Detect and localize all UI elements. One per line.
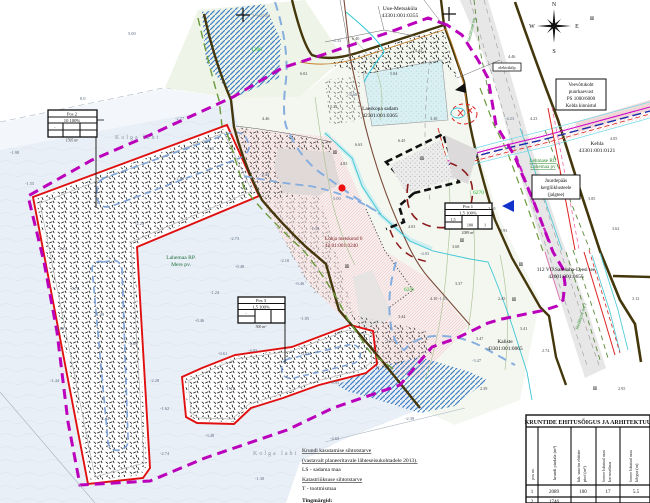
svg-text:II: II [460, 239, 464, 244]
svg-text:-2.44: -2.44 [260, 172, 270, 177]
svg-text:T - tootmismaa: T - tootmismaa [302, 486, 337, 492]
svg-text:W: W [529, 24, 535, 30]
svg-text:II: II [519, 263, 523, 268]
svg-text:-0.70: -0.70 [70, 286, 80, 291]
svg-text:2.10: 2.10 [488, 206, 495, 211]
svg-text:-2.39: -2.39 [405, 416, 415, 421]
svg-text:PS 1000/6000: PS 1000/6000 [567, 97, 596, 102]
svg-text:2.45: 2.45 [498, 296, 505, 301]
svg-text:-4.33: -4.33 [332, 38, 342, 43]
svg-text:-2.25: -2.25 [135, 221, 145, 226]
svg-text:1.93: 1.93 [500, 228, 507, 233]
svg-text:-4.68: -4.68 [348, 92, 358, 97]
svg-text:-2.10: -2.10 [280, 258, 290, 263]
svg-text:-2.60: -2.60 [205, 146, 215, 151]
svg-text:1595 m²: 1595 m² [66, 139, 79, 143]
svg-text:3.44: 3.44 [398, 314, 406, 319]
svg-text:-0.46: -0.46 [295, 281, 305, 286]
svg-text:4.03: 4.03 [408, 224, 415, 229]
svg-text:-1.44: -1.44 [50, 378, 60, 383]
svg-text:5.00: 5.00 [128, 31, 136, 36]
svg-text:4.10: 4.10 [430, 296, 437, 301]
svg-text:42301:001:0365: 42301:001:0365 [362, 113, 398, 119]
svg-text:elektrikilp: elektrikilp [498, 65, 515, 70]
svg-text:5.00: 5.00 [333, 196, 341, 201]
svg-text:2.39: 2.39 [480, 386, 487, 391]
svg-text:4.23: 4.23 [530, 116, 537, 121]
svg-text:-0.61: -0.61 [218, 351, 227, 356]
svg-text:100: 100 [579, 490, 587, 495]
svg-text:17: 17 [606, 490, 612, 495]
svg-text:S: S [552, 49, 555, 55]
svg-text:4.42: 4.42 [415, 48, 422, 53]
svg-text:43301:001:0065: 43301:001:0065 [487, 346, 523, 352]
svg-text:-1.30: -1.30 [255, 476, 265, 481]
svg-text:42601:001:0655: 42601:001:0655 [548, 274, 584, 280]
svg-text:-4.03: -4.03 [248, 348, 258, 353]
svg-text:-3.48: -3.48 [205, 433, 215, 438]
svg-text:-2.74: -2.74 [160, 451, 170, 456]
svg-text:-4.23: -4.23 [505, 116, 515, 121]
svg-text:Mere pv.: Mere pv. [171, 262, 191, 268]
svg-text:Kaliste: Kaliste [497, 339, 513, 345]
svg-text:puurkaevust: puurkaevust [569, 90, 594, 95]
svg-text:6.45: 6.45 [398, 138, 405, 143]
svg-text:-1.98: -1.98 [10, 150, 20, 155]
svg-text:-2.62: -2.62 [175, 176, 184, 181]
svg-text:62/0: 62/0 [404, 287, 414, 293]
svg-text:(vastavalt planeeritavale läht: (vastavalt planeeritavale lähteseisukoht… [302, 457, 418, 464]
svg-text:500 m²: 500 m² [256, 325, 268, 329]
svg-text:6.02: 6.02 [300, 71, 307, 76]
svg-text:Kehla: Kehla [590, 141, 604, 147]
svg-text:-1.05: -1.05 [300, 316, 310, 321]
svg-text:43301:001:0121: 43301:001:0121 [579, 148, 616, 154]
svg-text:-2.73: -2.73 [230, 236, 240, 241]
svg-text:-0.95: -0.95 [330, 380, 340, 385]
svg-text:4.46: 4.46 [262, 116, 269, 121]
svg-text:-0.03: -0.03 [300, 351, 310, 356]
svg-text:krundi pindala (m²): krundi pindala (m²) [552, 445, 557, 480]
svg-text:N: N [552, 2, 557, 8]
svg-text:6270: 6270 [473, 190, 484, 196]
svg-text:Lahemaa pv: Lahemaa pv [530, 164, 556, 170]
svg-text:Katastriüksuse sihtotstarve: Katastriüksuse sihtotstarve [302, 477, 363, 483]
svg-text:Kelda kinnistul: Kelda kinnistul [566, 104, 597, 109]
svg-text:Pos 2: Pos 2 [67, 112, 78, 117]
svg-text:-4.65: -4.65 [330, 436, 340, 441]
svg-text:3.85: 3.85 [588, 196, 595, 201]
svg-text:-0.46: -0.46 [195, 318, 205, 323]
svg-text:Kolga laht: Kolga laht [253, 451, 298, 457]
svg-text:3.10: 3.10 [430, 116, 437, 121]
svg-text:-2.77: -2.77 [175, 116, 185, 121]
svg-text:-3.47: -3.47 [472, 358, 482, 363]
svg-text:Kolga laht: Kolga laht [115, 135, 160, 141]
svg-text:-1.55: -1.55 [25, 181, 35, 186]
svg-text:2089: 2089 [549, 490, 560, 495]
svg-text:hoone lubatud max: hoone lubatud max [601, 449, 606, 482]
svg-text:II: II [590, 17, 594, 22]
svg-text:2.95: 2.95 [618, 386, 625, 391]
svg-text:10 100%: 10 100% [64, 118, 81, 123]
svg-text:II: II [593, 387, 597, 392]
svg-text:1200: 1200 [251, 47, 262, 53]
svg-text:Pos 1: Pos 1 [463, 204, 474, 209]
svg-text:-2.14: -2.14 [58, 246, 68, 251]
svg-text:8.0: 8.0 [80, 96, 86, 101]
svg-text:3.12: 3.12 [632, 296, 639, 301]
svg-text:II: II [345, 265, 349, 270]
svg-text:4.05: 4.05 [610, 136, 617, 141]
svg-text:6.40: 6.40 [352, 36, 359, 41]
svg-text:II: II [333, 151, 337, 156]
svg-text:-0.48: -0.48 [235, 264, 245, 269]
svg-text:Lohja metskond 6: Lohja metskond 6 [325, 236, 363, 242]
svg-text:4.46: 4.46 [508, 54, 515, 59]
svg-text:-1.22: -1.22 [385, 338, 394, 343]
svg-text:-4.03: -4.03 [420, 251, 430, 256]
svg-text:korruselisus: korruselisus [607, 461, 612, 482]
svg-text:Juurdepääs: Juurdepääs [545, 179, 567, 184]
svg-text:-1.41: -1.41 [225, 386, 234, 391]
svg-text:Tingmärgid:: Tingmärgid: [302, 498, 332, 503]
svg-text:Veevõtukoht: Veevõtukoht [568, 83, 594, 88]
svg-text:-2.89: -2.89 [55, 326, 65, 331]
svg-text:43:01:001:0240: 43:01:001:0240 [325, 243, 358, 249]
svg-text:pos nr.: pos nr. [530, 468, 535, 480]
svg-text:Lehmase RÜ: Lehmase RÜ [529, 157, 556, 164]
svg-text:lub. suurim ehitiste: lub. suurim ehitiste [576, 450, 581, 482]
svg-text:3.68: 3.68 [452, 244, 459, 249]
svg-text:Laeskopa sadam: Laeskopa sadam [362, 106, 399, 112]
svg-text:-1.62: -1.62 [160, 406, 169, 411]
svg-text:Uue-Metsaküla: Uue-Metsaküla [383, 6, 418, 12]
svg-text:-2.44: -2.44 [100, 416, 110, 421]
svg-text:Lahemaa RP.: Lahemaa RP. [166, 255, 196, 261]
svg-text:-1.39: -1.39 [95, 312, 105, 317]
svg-text:2089 m²: 2089 m² [462, 231, 475, 235]
svg-text:-1.39: -1.39 [310, 226, 320, 231]
svg-text:II: II [420, 157, 424, 162]
svg-text:3.41: 3.41 [520, 326, 527, 331]
svg-text:Pos 3: Pos 3 [256, 298, 267, 303]
svg-text:-2.28: -2.28 [150, 378, 160, 383]
svg-text:2.74: 2.74 [542, 348, 550, 353]
svg-text:KRUNTIDE EHITUSÕIGUS JA ARHITE: KRUNTIDE EHITUSÕIGUS JA ARHITEKTUUR [525, 418, 650, 426]
svg-text:hoone lubatud max: hoone lubatud max [628, 449, 633, 482]
svg-text:3.47: 3.47 [476, 336, 483, 341]
svg-text:-1.24: -1.24 [210, 290, 220, 295]
svg-text:-1.35: -1.35 [438, 296, 448, 301]
svg-text:3.37: 3.37 [455, 281, 462, 286]
svg-text:4.83: 4.83 [340, 161, 347, 166]
svg-text:1: 1 [484, 223, 486, 228]
svg-text:112 VO Samsaba-Leesi tee: 112 VO Samsaba-Leesi tee [537, 267, 596, 273]
svg-text:X=6557100: X=6557100 [252, 14, 270, 18]
svg-text:II: II [512, 298, 516, 303]
svg-text:Krundi kasutamise sihtotstarve: Krundi kasutamise sihtotstarve [302, 448, 372, 454]
svg-text:LS - sadama maa: LS - sadama maa [302, 467, 341, 473]
svg-text:kõrgus (m): kõrgus (m) [634, 463, 639, 482]
svg-text:43301:001:0355: 43301:001:0355 [382, 13, 419, 19]
svg-text:5.5: 5.5 [633, 490, 640, 495]
svg-text:3.62: 3.62 [612, 226, 619, 231]
svg-text:kergliiklusteele: kergliiklusteele [541, 186, 573, 191]
svg-text:E: E [575, 24, 579, 30]
svg-text:pind (m²): pind (m²) [582, 466, 587, 482]
svg-text:6.63: 6.63 [355, 142, 362, 147]
svg-text:100: 100 [467, 223, 473, 228]
svg-text:5.22: 5.22 [330, 104, 337, 109]
svg-text:5.04: 5.04 [390, 71, 398, 76]
svg-text:(jalgtee): (jalgtee) [548, 193, 565, 198]
svg-text:-3.09: -3.09 [128, 341, 138, 346]
